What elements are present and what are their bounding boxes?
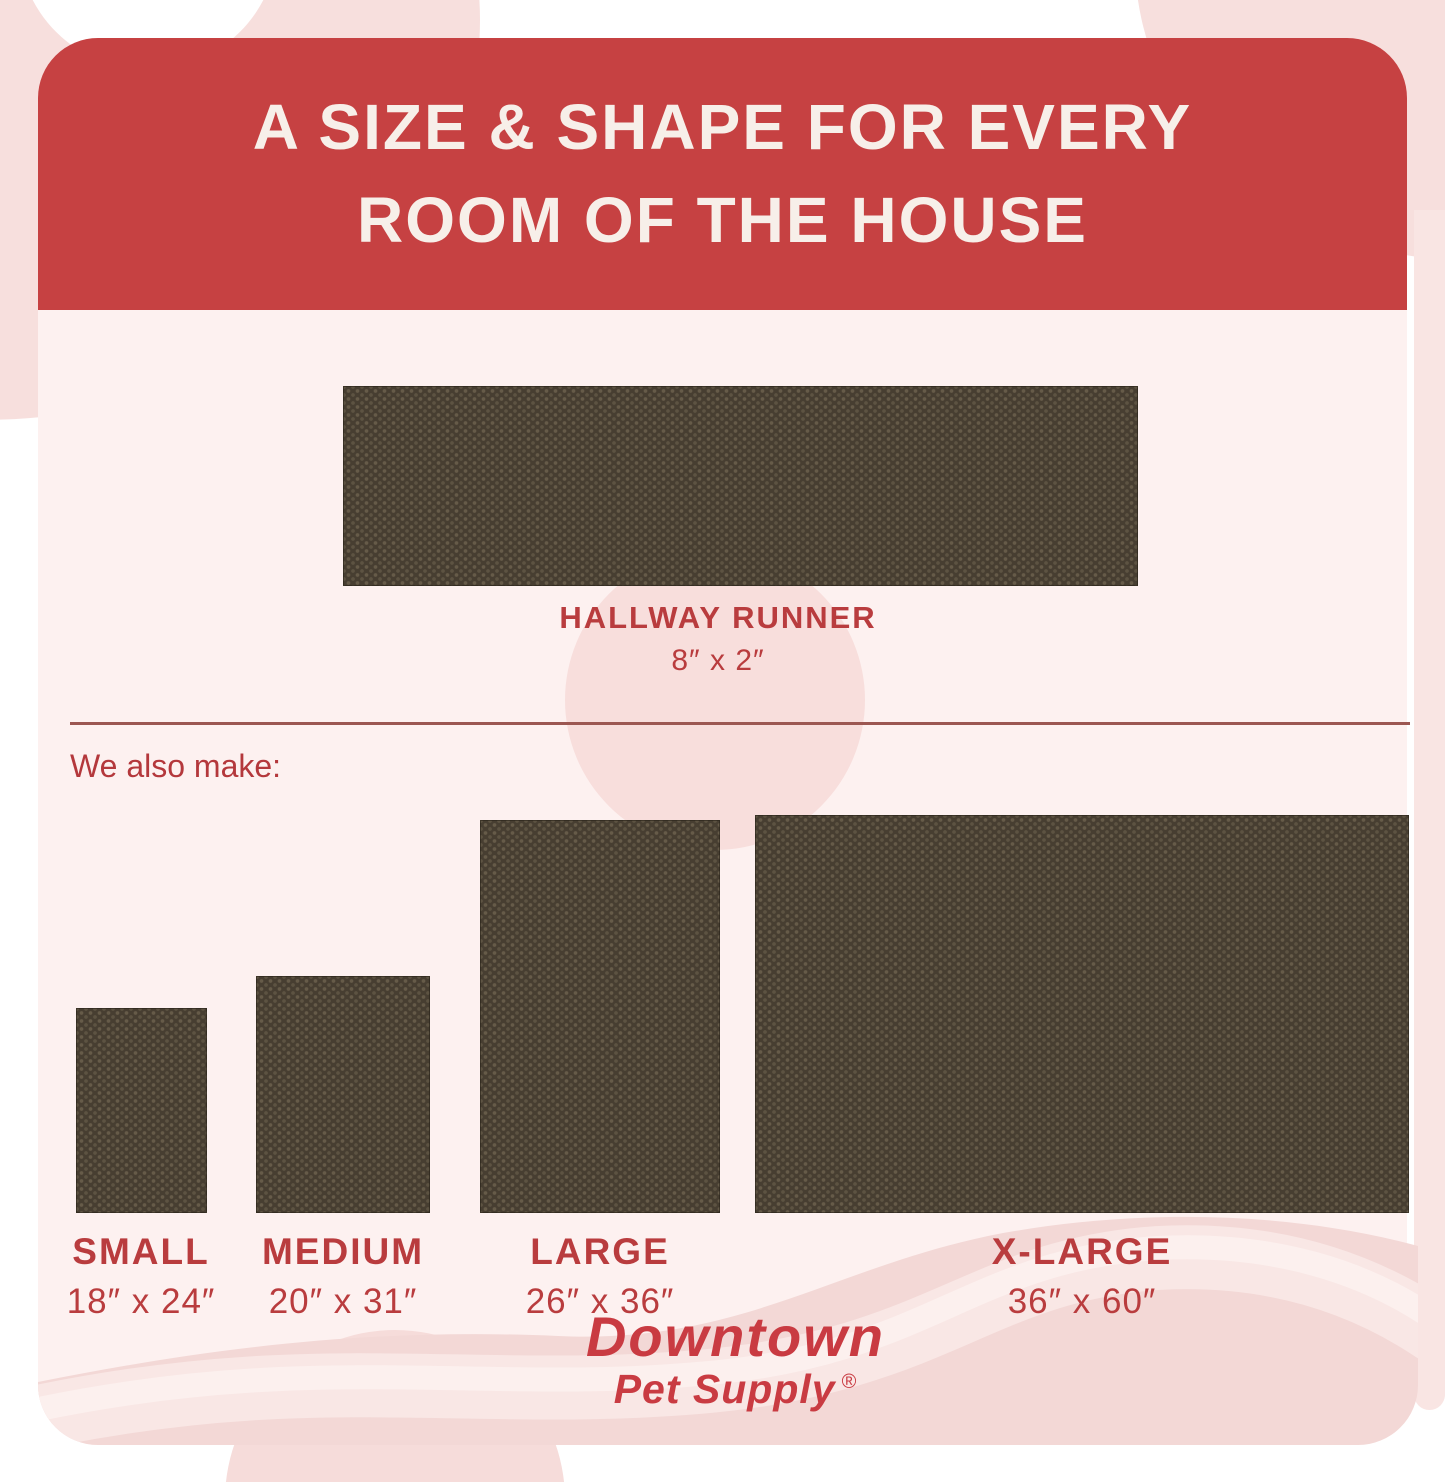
rug-small xyxy=(76,1008,207,1213)
registered-trademark-symbol: ® xyxy=(842,1371,858,1393)
size-guide-infographic: A SIZE & SHAPE FOR EVERY ROOM OF THE HOU… xyxy=(0,0,1445,1482)
medium-name: MEDIUM xyxy=(262,1233,424,1270)
header-banner: A SIZE & SHAPE FOR EVERY ROOM OF THE HOU… xyxy=(38,38,1407,310)
medium-label: MEDIUM 20″ x 31″ xyxy=(262,1233,424,1319)
brand-sub-text: Pet Supply xyxy=(614,1366,836,1412)
brand-subtitle: Pet Supply® xyxy=(38,1367,1433,1412)
runner-dimensions: 8″ x 2″ xyxy=(559,646,876,676)
small-name: SMALL xyxy=(67,1233,216,1270)
also-make-text: We also make: xyxy=(70,748,281,785)
brand-name: Downtown xyxy=(38,1308,1433,1367)
rug-large xyxy=(480,820,720,1213)
large-name: LARGE xyxy=(526,1233,675,1270)
title-line-1: A SIZE & SHAPE FOR EVERY xyxy=(253,91,1192,163)
page-title: A SIZE & SHAPE FOR EVERY ROOM OF THE HOU… xyxy=(253,81,1192,267)
small-label: SMALL 18″ x 24″ xyxy=(67,1233,216,1319)
rug-medium xyxy=(256,976,430,1213)
brand-logo: Downtown Pet Supply® xyxy=(38,1308,1433,1412)
title-line-2: ROOM OF THE HOUSE xyxy=(357,184,1088,256)
xlarge-label: X-LARGE 36″ x 60″ xyxy=(992,1233,1173,1319)
runner-name: HALLWAY RUNNER xyxy=(559,602,876,633)
xlarge-name: X-LARGE xyxy=(992,1233,1173,1270)
rug-xlarge xyxy=(755,815,1409,1213)
hallway-runner-label: HALLWAY RUNNER 8″ x 2″ xyxy=(559,602,876,676)
rug-hallway-runner xyxy=(343,386,1138,586)
right-edge-pink-band xyxy=(1414,210,1445,1410)
section-divider xyxy=(70,722,1410,725)
